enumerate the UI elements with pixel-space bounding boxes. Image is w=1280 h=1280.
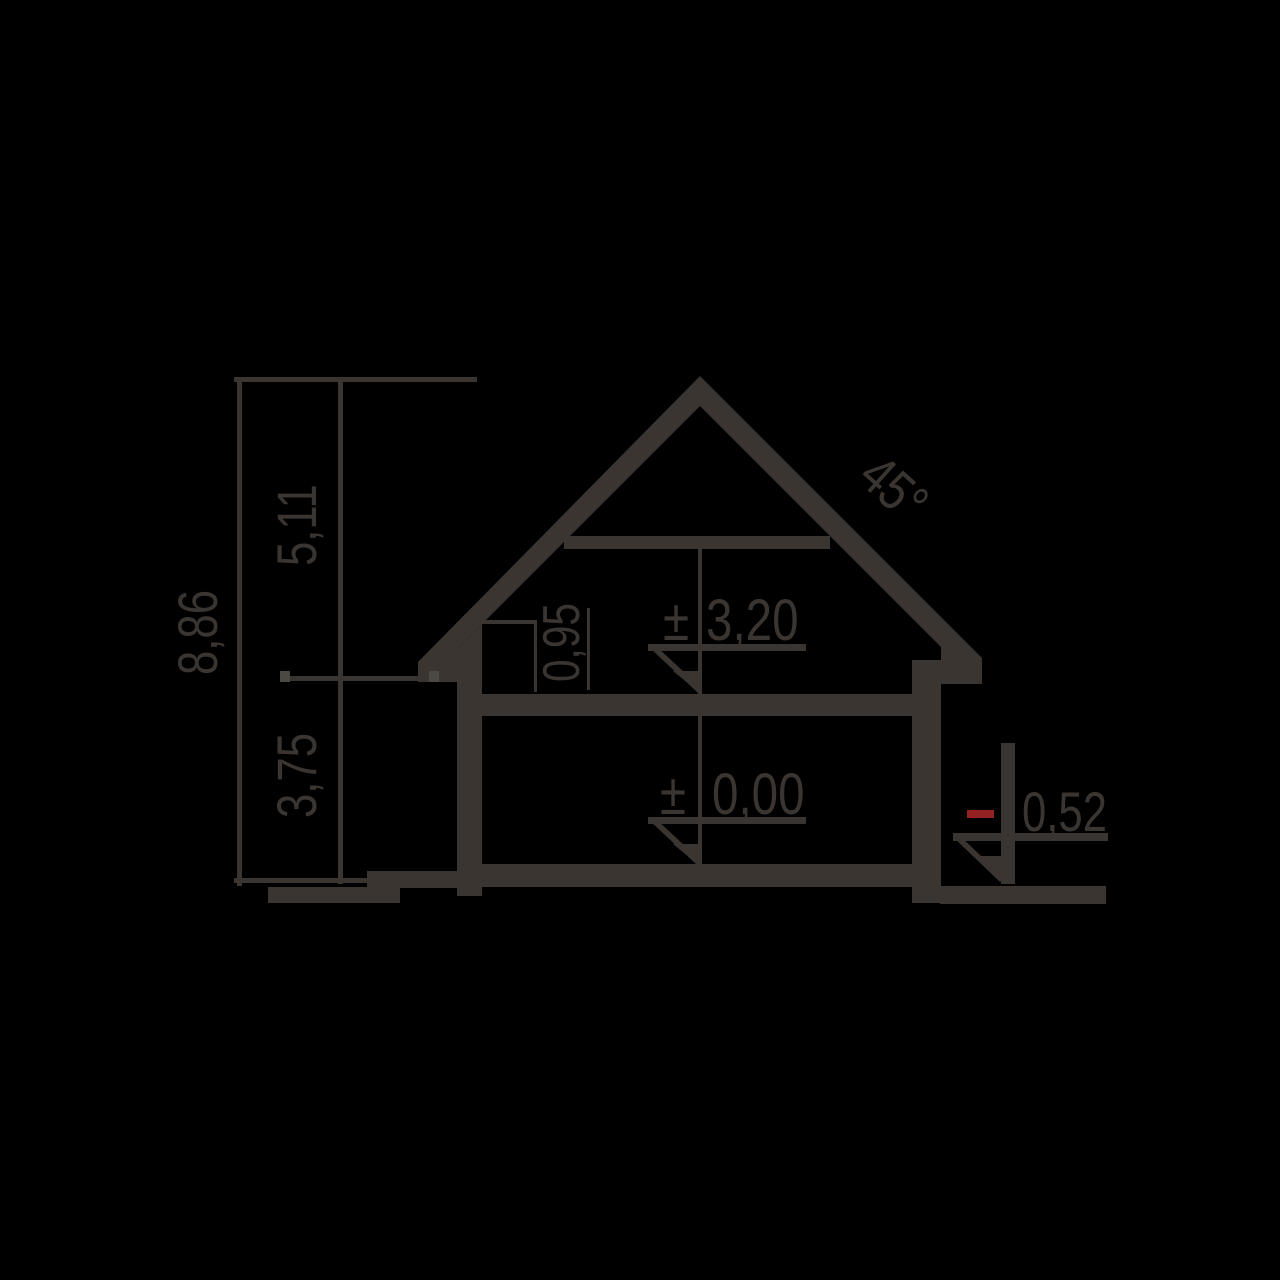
svg-text:8,86: 8,86 [167, 590, 229, 675]
svg-text:3,20: 3,20 [706, 589, 799, 654]
svg-text:0,95: 0,95 [532, 603, 590, 682]
svg-text:45°: 45° [848, 442, 940, 534]
svg-text:±: ± [663, 589, 689, 654]
svg-text:3,75: 3,75 [266, 733, 328, 818]
svg-text:5,11: 5,11 [266, 484, 328, 566]
